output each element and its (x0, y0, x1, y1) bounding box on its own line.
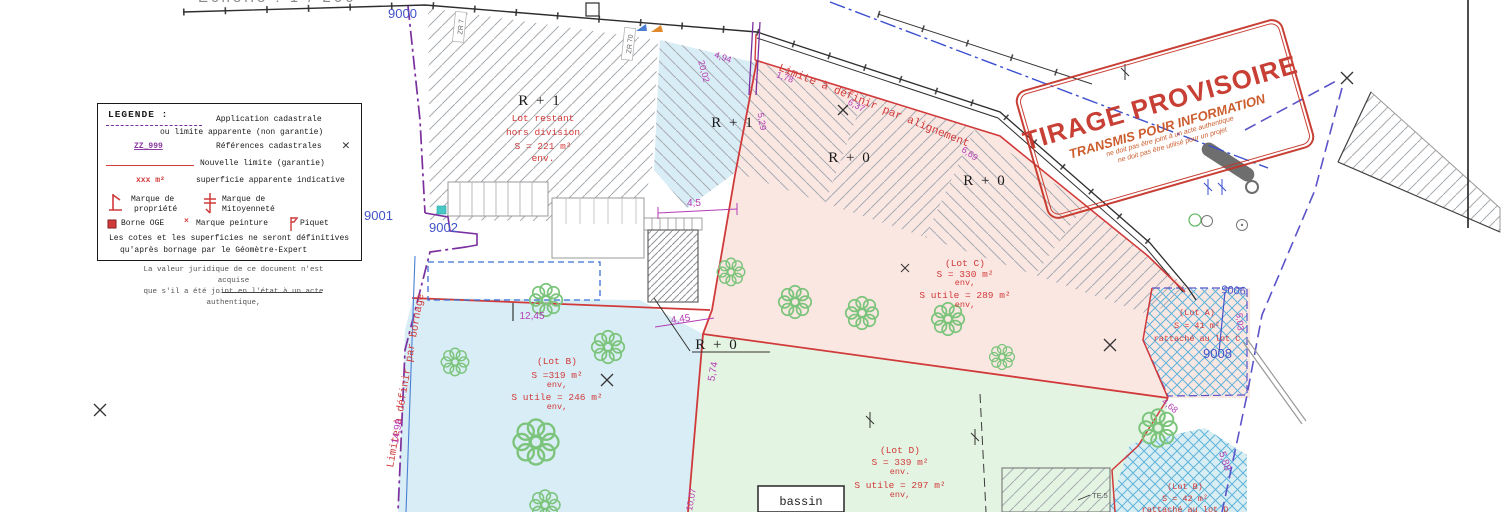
legal-note-line1: La valeur juridique de ce document n'est… (126, 265, 341, 287)
lot-restant-l1: Lot restant (512, 113, 575, 124)
lot-restant-l2: hors division (506, 127, 580, 138)
legend-box: LEGENDE : Application cadastrale ou limi… (97, 103, 362, 261)
floor-label-r1-b: R + 1 (711, 115, 754, 131)
lot-b2-name: (Lot B) (1167, 482, 1203, 492)
lot-b2-note: rattaché au lot D (1142, 505, 1229, 512)
lot-a-note: rattaché au lot C (1154, 334, 1241, 344)
legend-title: LEGENDE : (108, 109, 168, 120)
lot-d-env: env. (890, 467, 910, 477)
legal-note: La valeur juridique de ce document n'est… (126, 265, 341, 309)
paint-mark-icon (94, 404, 106, 416)
floor-label-r0-a: R + 0 (828, 150, 871, 166)
outbuilding (1002, 468, 1110, 512)
point-label-9001: 9001 (364, 208, 393, 223)
lot-b-env: env, (547, 380, 567, 390)
party-wall-mark-icon (202, 192, 218, 216)
point-label-9000: 9000 (388, 6, 417, 21)
floor-label-r1-main: R + 1 (518, 93, 561, 109)
legend-piquet: Piquet (300, 219, 329, 228)
paint-mark-icon: × (184, 217, 189, 226)
lot-b-name: (Lot B) (537, 356, 577, 367)
point-label-9002: 9002 (429, 220, 458, 235)
legend-area-label: superficie apparente indicative (196, 176, 345, 185)
borne-oge-icon (107, 219, 117, 229)
legend-note2: qu'après bornage par le Géomètre-Expert (120, 246, 307, 255)
neighbor-building (1338, 92, 1500, 232)
legend-note1: Les cotes et les superficies ne seront d… (109, 234, 349, 243)
new-limit-sample-line (106, 165, 194, 166)
legal-note-line2: que s'il a été joint en l'état à un acte… (126, 287, 341, 309)
legend-app1: Application cadastrale (216, 115, 322, 124)
lot-b2-surface: S = 42 m² (1162, 494, 1208, 504)
lot-c-env: env, (955, 278, 975, 288)
lot-restant-l3: S = 221 m² (514, 141, 571, 152)
piquet-icon (288, 216, 298, 232)
bassin-label: bassin (779, 495, 822, 509)
lot-a-surface: S = 41 m² (1174, 321, 1220, 331)
cadastral-limit-sample-line (106, 125, 202, 126)
legend-area-code: xxx m² (136, 176, 165, 185)
dim-12-45: 12,45 (519, 311, 544, 322)
floor-label-r0-b: R + 0 (963, 173, 1006, 189)
paint-mark-icon (1341, 72, 1353, 84)
lot-d-name: (Lot D) (880, 445, 920, 456)
lot-restant-l4: env. (532, 153, 555, 164)
lot-a-name: (Lot A) (1179, 308, 1215, 318)
legal-note-underline (222, 292, 322, 293)
legend-peinture: Marque peinture (196, 219, 268, 228)
legend-mark1a: Marque de (131, 195, 174, 204)
point-label-9008: 9008 (1203, 346, 1232, 361)
te5-label: TE.5 (1092, 491, 1108, 500)
point-label-9005: 9005 (1221, 282, 1246, 296)
legend-app2: ou limite apparente (non garantie) (160, 128, 323, 137)
legend-borne: Borne OGE (121, 219, 164, 228)
lot-b-env2: env, (547, 402, 567, 412)
paint-mark-icon: ✕ (342, 138, 350, 153)
dim-5-03: 5,03 (1234, 313, 1245, 331)
scale-note: Echelle : 1 / 200 (198, 0, 357, 6)
lot-c-name: (Lot C) (945, 258, 985, 269)
property-mark-icon (108, 192, 126, 214)
dim-4-45: 4,45 (670, 313, 691, 327)
lot-d-env2: env, (890, 490, 910, 500)
legend-mark2a: Marque de (222, 195, 265, 204)
legend-mark2b: Mitoyenneté (222, 205, 275, 214)
lot-c-env2: env, (955, 300, 975, 310)
legend-new-limit: Nouvelle limite (garantie) (200, 159, 325, 168)
cadastral-division-plan: Echelle : 1 / 200 (0, 0, 1504, 512)
floor-label-r0-c: R + 0 (695, 337, 738, 353)
legend-ref-code: ZZ_999 (134, 142, 163, 151)
dim-4-5: 4,5 (687, 198, 701, 209)
legend-mark1b: propriété (134, 205, 177, 214)
legend-ref-label: Références cadastrales (216, 142, 322, 151)
